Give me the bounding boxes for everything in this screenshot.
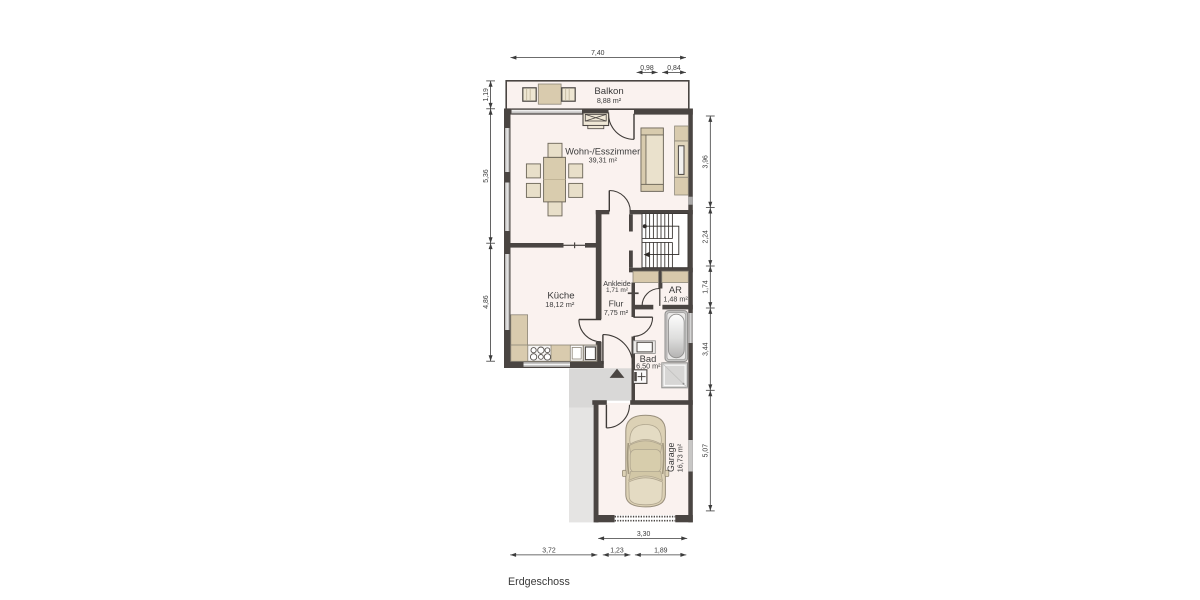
svg-text:1,74: 1,74 [703,280,710,294]
svg-text:3,72: 3,72 [542,547,556,554]
svg-text:18,12 m²: 18,12 m² [545,300,575,309]
svg-text:39,31 m²: 39,31 m² [589,156,618,165]
svg-text:4,86: 4,86 [483,295,490,309]
svg-text:AR: AR [669,284,682,295]
svg-text:3,30: 3,30 [637,531,651,538]
svg-text:6,50 m²: 6,50 m² [636,361,661,370]
svg-text:2,24: 2,24 [703,230,710,244]
svg-text:0,84: 0,84 [667,65,681,72]
svg-text:16,73 m²: 16,73 m² [675,443,684,472]
svg-text:5,36: 5,36 [483,169,490,183]
svg-text:1,48 m²: 1,48 m² [663,295,688,304]
svg-text:3,44: 3,44 [703,342,710,356]
svg-text:1,89: 1,89 [654,547,668,554]
svg-text:0,98: 0,98 [640,65,654,72]
svg-text:1,71 m²: 1,71 m² [606,287,629,294]
svg-text:1,19: 1,19 [483,88,490,102]
svg-text:1,23: 1,23 [610,547,624,554]
svg-text:7,40: 7,40 [591,50,605,57]
svg-text:7,75 m²: 7,75 m² [604,308,629,317]
svg-text:8,88 m²: 8,88 m² [597,96,622,105]
svg-text:5,07: 5,07 [703,444,710,458]
svg-text:Erdgeschoss: Erdgeschoss [508,576,570,588]
svg-text:3,96: 3,96 [703,155,710,169]
